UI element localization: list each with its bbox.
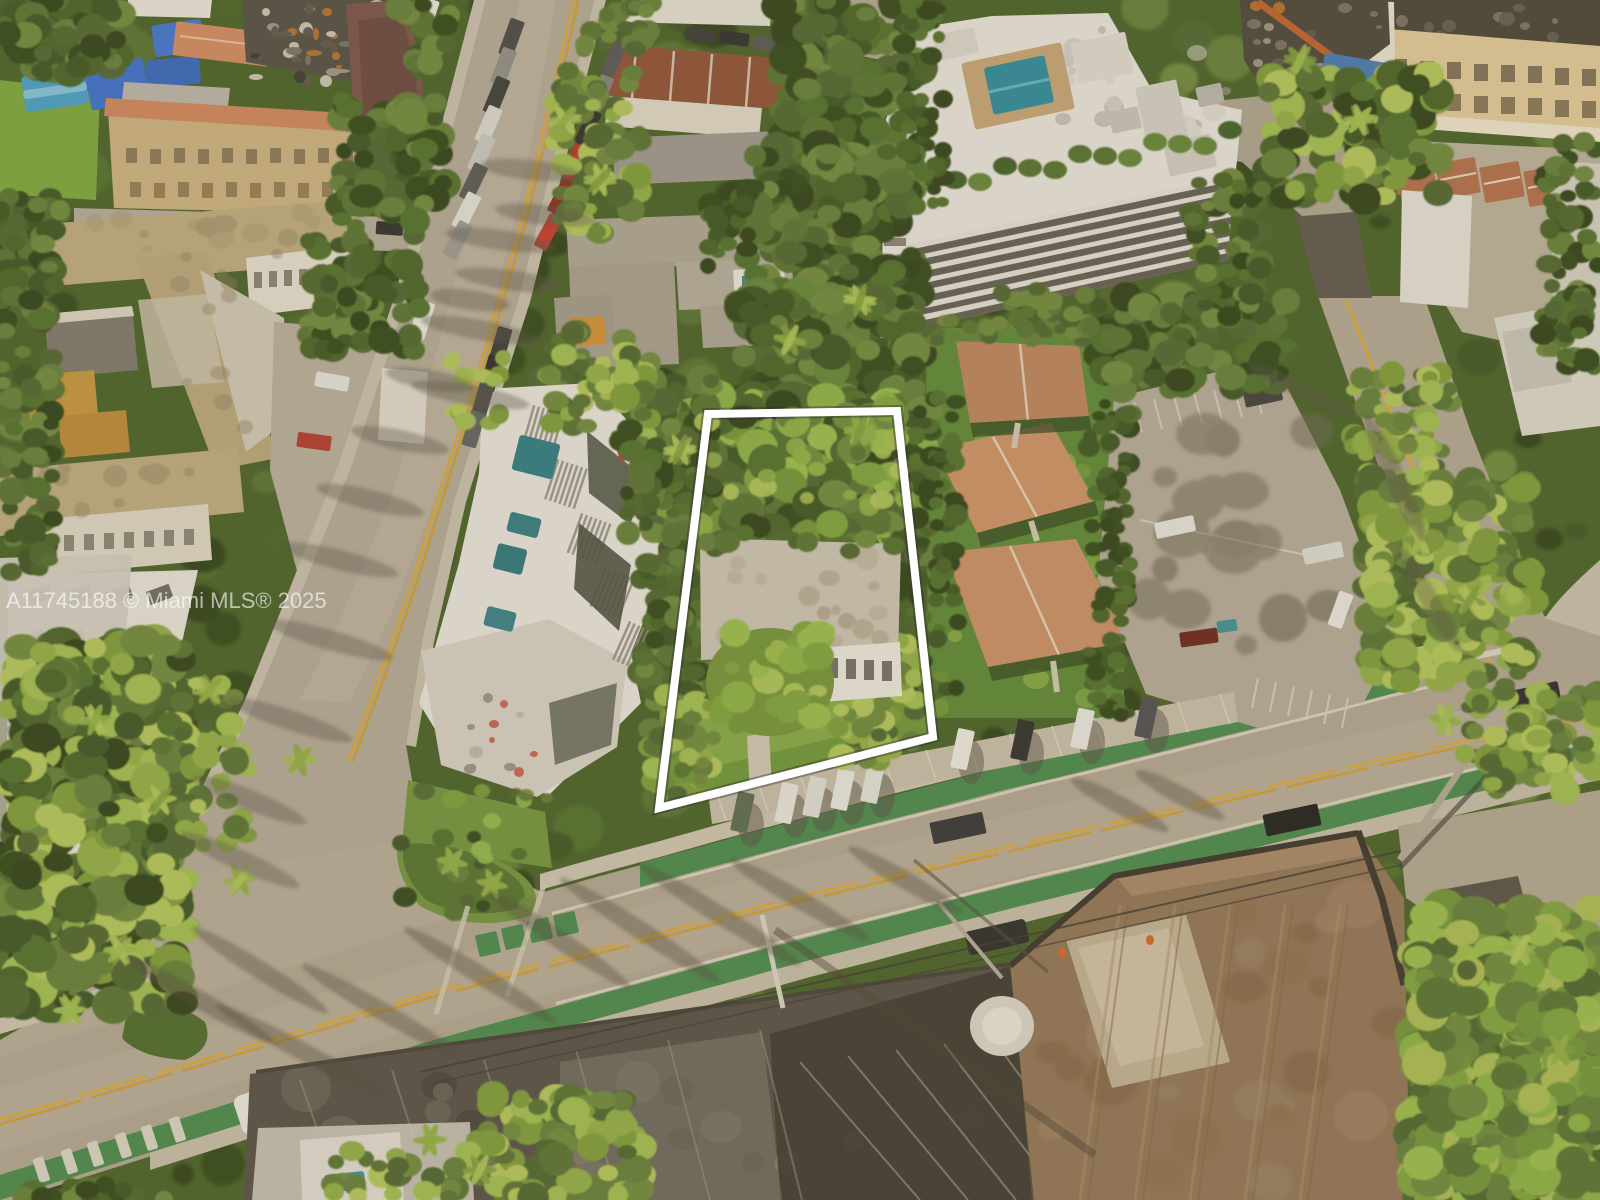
svg-text:A11745188 © Miami MLS® 2025: A11745188 © Miami MLS® 2025: [6, 588, 327, 613]
